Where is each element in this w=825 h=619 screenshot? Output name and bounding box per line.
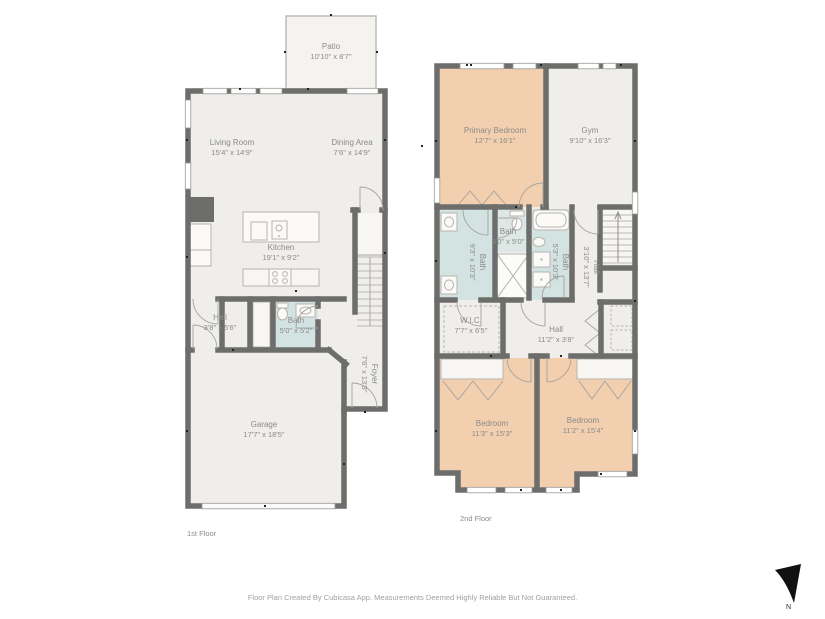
floor-plan-drawing xyxy=(0,0,825,619)
primary-bedroom-floor xyxy=(439,68,546,207)
footer-disclaimer: Floor Plan Created By Cubicasa App. Meas… xyxy=(0,593,825,602)
floor1-plan xyxy=(185,14,423,509)
patio-deck xyxy=(286,16,376,89)
floor2-plan xyxy=(434,63,638,493)
north-label: N xyxy=(786,604,791,611)
floor2-staircase xyxy=(603,209,632,264)
floor-plan-page: Patio 10'10" x 8'7" Living Room 15'4" x … xyxy=(0,0,825,619)
floor2-caption: 2nd Floor xyxy=(460,514,492,523)
floor1-caption: 1st Floor xyxy=(187,529,216,538)
